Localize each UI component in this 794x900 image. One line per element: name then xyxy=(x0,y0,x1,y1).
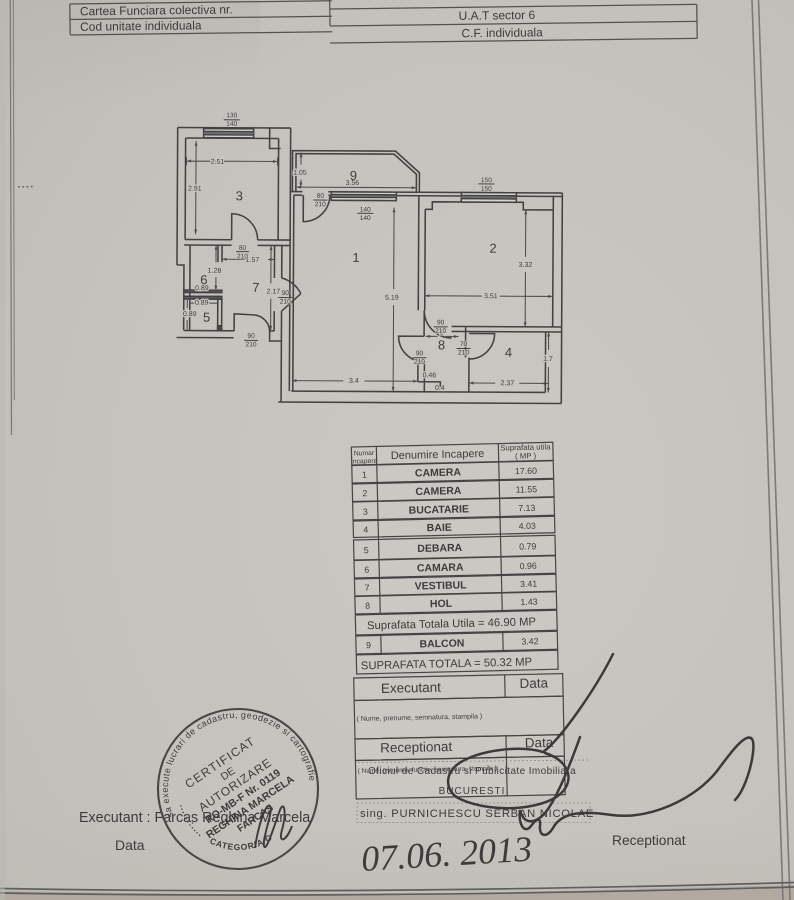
svg-text:3.4: 3.4 xyxy=(349,378,359,385)
svg-text:7: 7 xyxy=(365,583,370,593)
svg-text:6: 6 xyxy=(364,565,369,575)
svg-text:5: 5 xyxy=(203,310,210,325)
svg-text:3.42: 3.42 xyxy=(521,636,538,646)
svg-text:80: 80 xyxy=(317,193,325,200)
svg-text:Incapere: Incapere xyxy=(351,458,378,466)
svg-text:140: 140 xyxy=(360,215,371,222)
svg-text:150: 150 xyxy=(481,177,492,184)
svg-text:210: 210 xyxy=(414,359,425,366)
svg-text:4: 4 xyxy=(363,525,368,535)
svg-text:3.32: 3.32 xyxy=(519,262,533,269)
svg-text:210: 210 xyxy=(280,299,291,306)
svg-text:Cartea Funciara colectiva nr.: Cartea Funciara colectiva nr. xyxy=(80,2,233,18)
svg-text:3: 3 xyxy=(236,188,243,203)
svg-text:6: 6 xyxy=(200,272,207,287)
svg-text:Denumire Incapere: Denumire Incapere xyxy=(391,448,485,462)
svg-text:3.51: 3.51 xyxy=(484,293,498,300)
svg-text:4: 4 xyxy=(505,345,512,360)
svg-text:210: 210 xyxy=(237,253,248,260)
svg-text:210: 210 xyxy=(435,328,446,335)
svg-text:2.91: 2.91 xyxy=(188,186,202,193)
svg-text:8: 8 xyxy=(438,337,445,352)
svg-text:CAMERA: CAMERA xyxy=(415,485,462,498)
svg-text:DEBARA: DEBARA xyxy=(417,542,463,555)
svg-text:2: 2 xyxy=(362,488,367,498)
svg-text:0.89: 0.89 xyxy=(195,300,209,307)
svg-text:2.37: 2.37 xyxy=(501,380,515,387)
svg-text:0.4: 0.4 xyxy=(435,385,445,392)
svg-text:HOL: HOL xyxy=(430,598,453,611)
svg-text:90: 90 xyxy=(437,319,445,326)
svg-text:210: 210 xyxy=(246,341,257,348)
svg-text:90: 90 xyxy=(247,333,255,340)
svg-text:1.05: 1.05 xyxy=(293,170,307,177)
svg-text:140: 140 xyxy=(226,121,237,128)
svg-text:2.51: 2.51 xyxy=(211,159,225,166)
svg-text:BUCATARIE: BUCATARIE xyxy=(409,503,470,516)
svg-text:CAMERA: CAMERA xyxy=(415,466,462,479)
svg-text:9: 9 xyxy=(366,640,371,650)
svg-text:1.7: 1.7 xyxy=(543,356,553,363)
svg-text:140: 140 xyxy=(360,206,371,213)
svg-text:1.43: 1.43 xyxy=(520,597,537,607)
svg-text:4.03: 4.03 xyxy=(519,521,536,531)
svg-text:130: 130 xyxy=(226,112,237,119)
svg-text:Receptionat: Receptionat xyxy=(380,739,453,756)
svg-text:90: 90 xyxy=(416,350,424,357)
svg-text:5: 5 xyxy=(364,545,369,555)
svg-text:Receptionat: Receptionat xyxy=(612,833,686,848)
svg-text:U.A.T sector 6: U.A.T sector 6 xyxy=(459,8,536,23)
svg-text:Numar: Numar xyxy=(354,450,375,457)
svg-text:17.60: 17.60 xyxy=(515,466,537,477)
svg-text:80: 80 xyxy=(239,245,247,252)
svg-text:CAMARA: CAMARA xyxy=(417,561,464,574)
svg-text:150: 150 xyxy=(481,186,492,193)
svg-text:3: 3 xyxy=(363,507,368,517)
svg-text:2: 2 xyxy=(489,241,496,256)
svg-text:0.79: 0.79 xyxy=(519,541,536,551)
svg-text:3.41: 3.41 xyxy=(520,579,537,589)
svg-text:0.96: 0.96 xyxy=(520,561,537,571)
svg-text:11.55: 11.55 xyxy=(516,484,538,495)
svg-text:5.19: 5.19 xyxy=(385,295,399,302)
svg-text:1: 1 xyxy=(362,470,367,480)
svg-text:( MP ): ( MP ) xyxy=(515,451,537,461)
svg-text:Data: Data xyxy=(115,837,145,853)
svg-text:Executant: Executant xyxy=(381,680,442,696)
svg-text:90: 90 xyxy=(282,290,290,297)
svg-text:Oficiul de Cadastru si Publici: Oficiul de Cadastru si Publicitate Imobi… xyxy=(368,766,576,777)
svg-text:BALCON: BALCON xyxy=(419,637,464,650)
svg-text:C.F. individuala: C.F. individuala xyxy=(461,25,543,40)
svg-text:Cod unitate individuala: Cod unitate individuala xyxy=(80,18,202,34)
svg-text:0.89: 0.89 xyxy=(183,311,197,318)
svg-text:210: 210 xyxy=(315,201,326,208)
svg-text:7: 7 xyxy=(252,280,259,295)
svg-text:2.17: 2.17 xyxy=(267,288,281,295)
svg-text:Data: Data xyxy=(519,675,548,691)
svg-text:0.46: 0.46 xyxy=(423,372,437,379)
svg-text:7.13: 7.13 xyxy=(518,503,535,513)
svg-text:VESTIBUL: VESTIBUL xyxy=(415,579,468,592)
svg-text:9: 9 xyxy=(350,168,357,183)
svg-text:BAIE: BAIE xyxy=(427,522,452,535)
svg-text:1: 1 xyxy=(352,250,359,265)
svg-text:sing. PURNICHESCU SERBAN NICOL: sing. PURNICHESCU SERBAN NICOLAE xyxy=(360,808,594,820)
svg-text:8: 8 xyxy=(365,601,370,611)
svg-text:210: 210 xyxy=(458,349,469,356)
svg-text:70: 70 xyxy=(460,341,468,348)
svg-text:1.28: 1.28 xyxy=(208,268,222,275)
